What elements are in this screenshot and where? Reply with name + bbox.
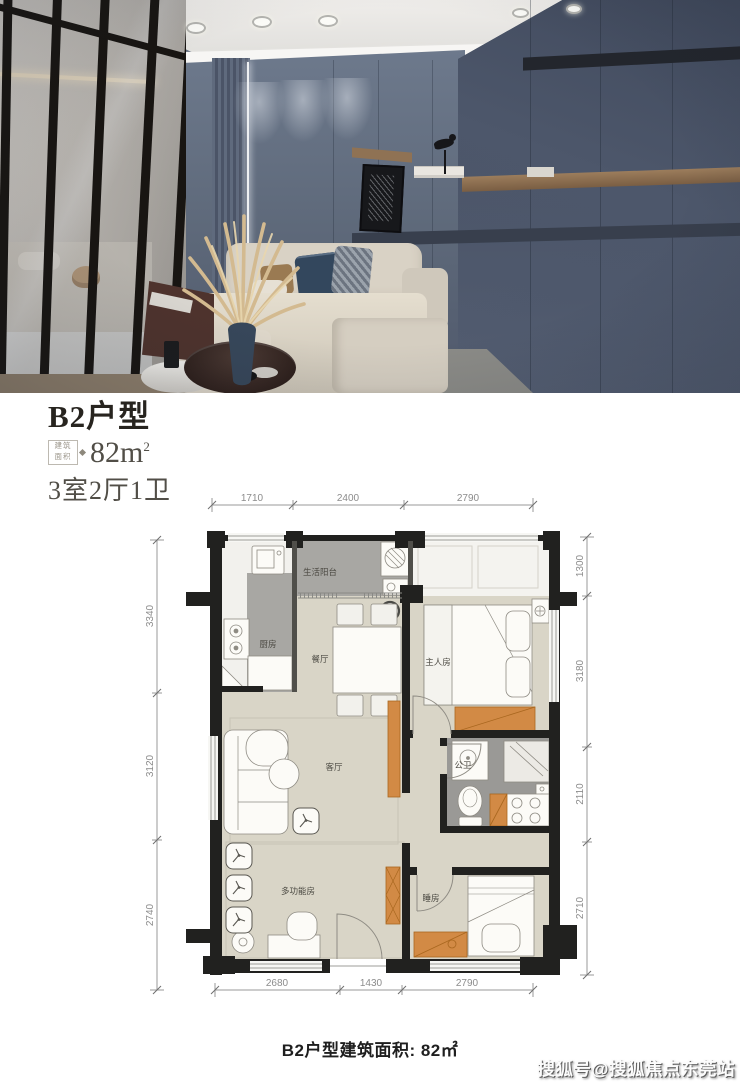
area-sup: 2 xyxy=(143,439,150,454)
master-dresser xyxy=(455,707,535,732)
dim-right-1: 1300 xyxy=(575,554,586,577)
area-label-line1: 建筑 xyxy=(49,441,77,452)
area-row: 建筑 面积 82m2 xyxy=(48,439,171,467)
label-kitchen: 厨房 xyxy=(259,639,276,649)
dim-top-1: 1710 xyxy=(241,493,264,504)
photo-vignette xyxy=(0,0,740,393)
label-balcony: 生活阳台 xyxy=(303,567,337,577)
bedroom-cabinet xyxy=(414,932,467,957)
dim-bottom-1: 2680 xyxy=(266,978,289,989)
kitchen-counter xyxy=(248,656,292,690)
label-master: 主人房 xyxy=(425,657,451,667)
label-bedroom: 睡房 xyxy=(422,893,439,903)
floor-plan: 生活阳台 厨房 餐厅 主人房 客厅 公卫 多功能房 睡房 1710 2400 2… xyxy=(0,480,740,1025)
area-value: 82m2 xyxy=(90,438,150,468)
dim-left-1: 3340 xyxy=(145,604,156,627)
label-bath: 公卫 xyxy=(454,760,472,770)
target-fixture-icon xyxy=(232,931,254,953)
dim-bottom-2: 1430 xyxy=(360,978,383,989)
area-label-line2: 面积 xyxy=(49,452,77,463)
diamond-icon xyxy=(79,449,86,456)
master-bed xyxy=(424,605,532,705)
dim-top-3: 2790 xyxy=(457,493,480,504)
label-multi: 多功能房 xyxy=(281,886,315,896)
dim-bottom-3: 2790 xyxy=(456,978,479,989)
stove xyxy=(224,619,249,659)
area-label-box: 建筑 面积 xyxy=(48,440,78,465)
label-living: 客厅 xyxy=(325,762,343,772)
dim-left-3: 2740 xyxy=(145,903,156,926)
multi-wardrobe xyxy=(386,867,400,924)
dim-right-4: 2710 xyxy=(575,896,586,919)
unit-title: B2户型 xyxy=(48,401,171,434)
nightstand xyxy=(532,599,549,623)
hero-photo xyxy=(0,0,740,393)
tv-cabinet xyxy=(388,701,400,797)
bedroom-bed xyxy=(468,876,534,956)
toilet xyxy=(458,786,482,826)
area-number: 82m xyxy=(90,436,143,469)
bath-washer xyxy=(490,794,549,826)
dim-right-3: 2110 xyxy=(575,783,586,805)
kitchen-sink xyxy=(252,546,284,574)
shower xyxy=(504,741,549,782)
dim-top-2: 2400 xyxy=(337,493,360,504)
round-coffee-table-plan xyxy=(269,759,299,789)
dim-right-2: 3180 xyxy=(575,659,586,682)
watermark: 搜狐号@搜狐焦点东莞站 xyxy=(537,1056,735,1081)
label-dining: 餐厅 xyxy=(311,654,329,664)
dim-left-2: 3120 xyxy=(145,754,156,777)
